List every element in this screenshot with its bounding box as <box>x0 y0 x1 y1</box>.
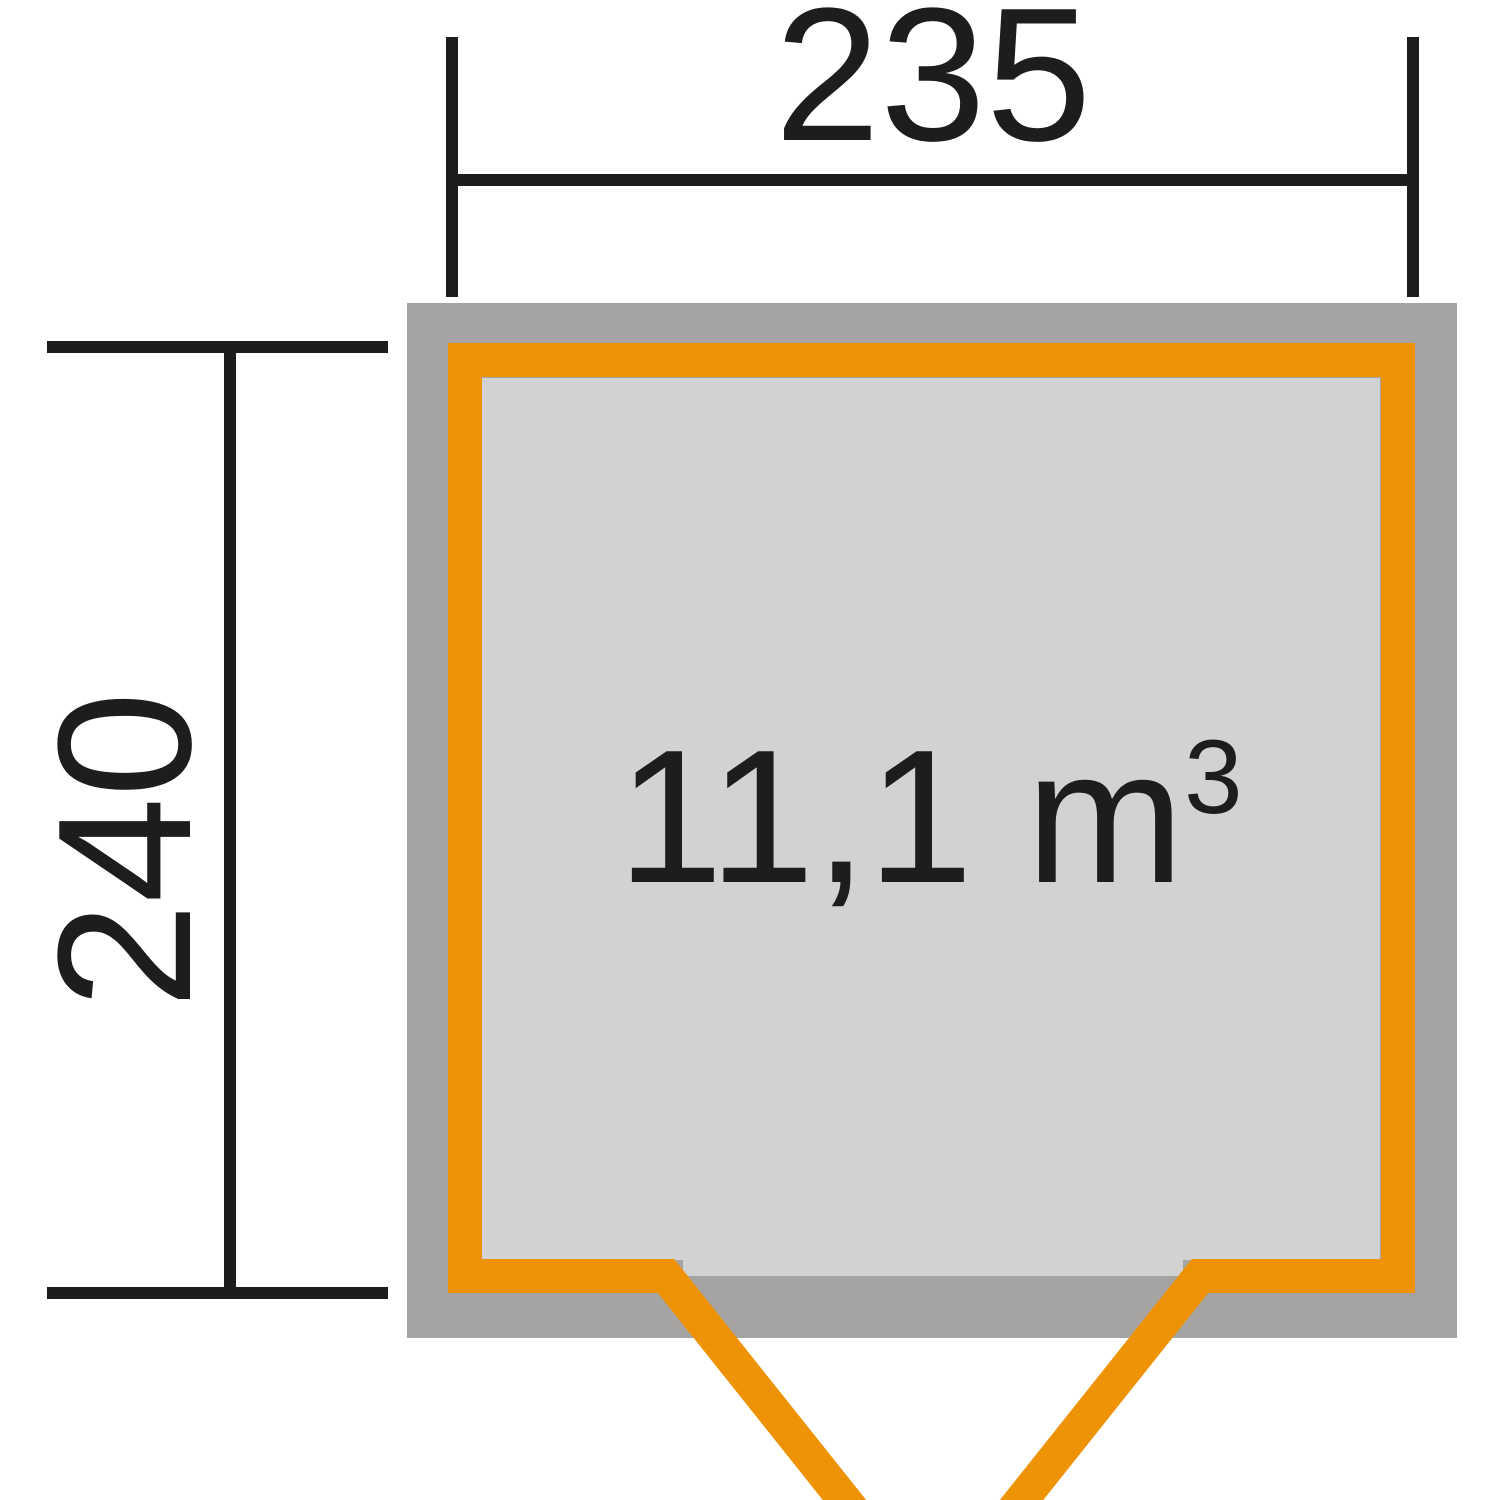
volume-exponent: 3 <box>1184 719 1242 836</box>
floor-plan-canvas: 235 240 11,1 m3 <box>0 0 1500 1500</box>
height-dimension-label: 240 <box>19 691 231 1008</box>
volume-value: 11,1 m <box>617 711 1184 923</box>
door-opening <box>683 1260 1183 1276</box>
volume-label: 11,1 m3 <box>617 711 1242 923</box>
width-dimension-label: 235 <box>774 0 1091 181</box>
floor-plan-diagram: 235 240 11,1 m3 <box>0 0 1500 1500</box>
